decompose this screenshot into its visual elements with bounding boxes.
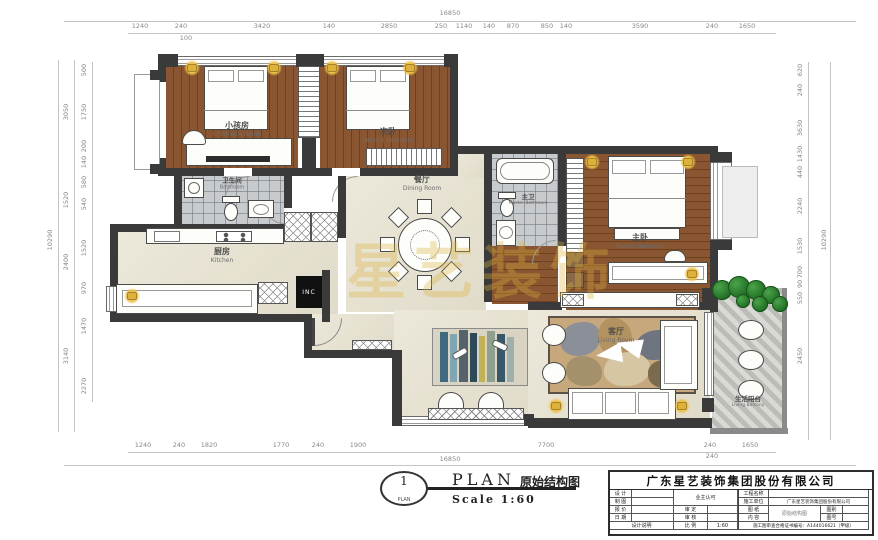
floor-lamp bbox=[548, 398, 564, 414]
room-name-cn: 客厅 bbox=[598, 327, 635, 337]
value-builder: 广东星艺装饰集团股份有限公司 bbox=[769, 498, 869, 506]
kitchen-sink bbox=[154, 231, 180, 242]
entry-cabinet bbox=[352, 340, 392, 350]
dimension-label: 2270 bbox=[80, 378, 88, 395]
field-design bbox=[632, 490, 674, 498]
dimension-line bbox=[74, 60, 75, 432]
dimension-label: 1770 bbox=[273, 441, 290, 449]
plan-symbol: 1 PLAN bbox=[380, 471, 428, 506]
rug-stripe bbox=[507, 337, 514, 382]
dimension-label: 3140 bbox=[62, 348, 70, 365]
floor-lamp bbox=[674, 398, 690, 414]
balcony-door bbox=[704, 312, 714, 396]
dimension-label: 140 bbox=[80, 156, 88, 168]
toilet-tank bbox=[222, 196, 240, 203]
plan-scale: Scale 1:60 bbox=[452, 493, 536, 506]
field-quote bbox=[632, 506, 674, 514]
dimension-label: 140 bbox=[560, 22, 572, 30]
pantry-cabinet bbox=[284, 212, 311, 242]
field-project bbox=[769, 490, 869, 498]
blanket-line bbox=[346, 110, 410, 111]
light-fixture bbox=[405, 64, 415, 72]
toilet bbox=[224, 203, 238, 221]
dimension-label: 10290 bbox=[820, 230, 828, 251]
wall bbox=[450, 56, 458, 176]
room-name-en: Second Bedroom bbox=[362, 137, 413, 145]
dimension-label: 550 bbox=[796, 292, 804, 304]
room-label-dining: 餐厅 Dining Room bbox=[403, 175, 441, 193]
field-date bbox=[632, 514, 674, 522]
stove bbox=[216, 231, 252, 242]
wall bbox=[392, 414, 402, 426]
dimension-label: 3050 bbox=[62, 104, 70, 121]
dimension-label: 1520 bbox=[62, 192, 70, 209]
room-name-cn: 卫生间 bbox=[220, 177, 245, 185]
dimension-label: 240 bbox=[173, 441, 185, 449]
room-label-second: 次卧 Second Bedroom bbox=[362, 127, 413, 145]
room-label-living: 客厅 Living Room bbox=[598, 327, 635, 345]
field-figtype bbox=[843, 506, 869, 514]
dimension-line bbox=[128, 452, 776, 453]
dimension-label: 500 bbox=[80, 64, 88, 76]
dimension-label: 240 bbox=[704, 441, 716, 449]
field-figno bbox=[843, 514, 869, 522]
wall bbox=[322, 270, 330, 322]
ceiling-light bbox=[324, 60, 340, 76]
dimension-label: 1750 bbox=[80, 104, 88, 121]
dimension-label: 1430 bbox=[796, 146, 804, 163]
dimension-label: 620 bbox=[796, 64, 804, 76]
dimension-label: 240 bbox=[312, 441, 324, 449]
dimension-line bbox=[58, 60, 59, 432]
dimension-label: 90 bbox=[796, 280, 804, 288]
room-label-children: 小孩房 Children's Room bbox=[213, 121, 262, 139]
dimension-line bbox=[92, 62, 93, 402]
room-label-kitchen: 厨房 Kitchen bbox=[211, 247, 234, 265]
dimension-label: 580 bbox=[80, 176, 88, 188]
dining-chair bbox=[417, 199, 432, 214]
field-check bbox=[708, 514, 738, 522]
value-cert: 施工图审查合格证书编号：A144016621（甲级） bbox=[739, 522, 869, 530]
dimension-label: 540 bbox=[80, 198, 88, 210]
company-name: 广东星艺装饰集团股份有限公司 bbox=[610, 472, 872, 490]
label-owner-approval: 业主认可 bbox=[674, 490, 738, 506]
room-label-master: 主卧 Master Bedroom bbox=[615, 233, 665, 251]
dimension-label: 2850 bbox=[381, 22, 398, 30]
round-chair bbox=[542, 324, 566, 346]
pillow bbox=[350, 70, 376, 82]
round-chair bbox=[542, 362, 566, 384]
washing-machine-drum bbox=[188, 182, 200, 194]
wall bbox=[150, 70, 166, 80]
ceiling-light bbox=[124, 288, 140, 304]
dimension-label: 3420 bbox=[254, 22, 271, 30]
refrigerator: INC bbox=[296, 276, 322, 308]
tv-console-cabinet bbox=[676, 294, 698, 306]
counter-bench-top bbox=[122, 290, 252, 307]
plant bbox=[752, 296, 768, 312]
console-table bbox=[428, 408, 524, 420]
wall bbox=[392, 350, 402, 424]
field-draft bbox=[632, 498, 674, 506]
dimension-label: 2400 bbox=[62, 254, 70, 271]
light-fixture bbox=[127, 292, 137, 300]
dimension-label: 1650 bbox=[739, 22, 756, 30]
room-name-en: Kitchen bbox=[211, 257, 234, 265]
room-label-balcony: 生活阳台 Living Balcony bbox=[732, 395, 765, 409]
blanket-line bbox=[608, 198, 686, 199]
label-ratio: 比 例 bbox=[674, 522, 708, 530]
dimension-label: 1650 bbox=[742, 441, 759, 449]
tv bbox=[206, 156, 270, 162]
watermark: 星艺装饰 bbox=[346, 224, 618, 311]
room-name-en: Master Bedroom bbox=[615, 243, 665, 251]
light-fixture bbox=[551, 402, 561, 410]
plan-number: 1 bbox=[382, 474, 426, 488]
ceiling-light bbox=[584, 154, 600, 170]
stool bbox=[664, 250, 686, 262]
sink-basin bbox=[253, 204, 269, 215]
dimension-label: 1520 bbox=[80, 240, 88, 257]
dimension-label: 700 bbox=[796, 266, 804, 278]
room-label-masterbath: 主卫 Master Bathroom bbox=[509, 193, 548, 207]
dimension-label: 970 bbox=[80, 282, 88, 294]
dimension-label: 2240 bbox=[796, 198, 804, 215]
dimension-label: 140 bbox=[483, 22, 495, 30]
pillow bbox=[650, 160, 684, 174]
room-name-cn: 餐厅 bbox=[403, 175, 441, 185]
dimension-label: 10290 bbox=[46, 230, 54, 251]
rug-stripe bbox=[440, 332, 448, 382]
dimension-line bbox=[128, 33, 776, 34]
label-check: 审 核 bbox=[674, 514, 708, 522]
rug-stripe bbox=[470, 333, 477, 382]
dimension-line bbox=[808, 62, 809, 440]
dimension-label: 100 bbox=[180, 34, 192, 42]
wall bbox=[174, 168, 182, 232]
wall bbox=[284, 168, 292, 208]
room-name-cn: 小孩房 bbox=[213, 121, 262, 131]
dimension-label: 1470 bbox=[80, 318, 88, 335]
plan-symbol-sub: PLAN bbox=[382, 497, 426, 503]
sofa-cushion bbox=[638, 392, 669, 414]
bathtub-basin bbox=[500, 162, 550, 180]
dimension-label: 3590 bbox=[632, 22, 649, 30]
ceiling-light bbox=[684, 266, 700, 282]
light-fixture bbox=[269, 64, 279, 72]
dimension-label: 2450 bbox=[796, 348, 804, 365]
rug-stripe bbox=[479, 336, 485, 382]
dimension-label: 250 bbox=[435, 22, 447, 30]
dimension-label: 1140 bbox=[456, 22, 473, 30]
title-block-left: 设 计 业主认可 制 图 报 价 审 定 日 期 审 核 设计说明 比 例 1:… bbox=[610, 490, 738, 530]
label-project: 工程名称 bbox=[739, 490, 769, 498]
room-name-cn: 次卧 bbox=[362, 127, 413, 137]
pillow bbox=[612, 160, 646, 174]
plan-title-cn: 原始结构图 bbox=[520, 473, 580, 490]
light-fixture bbox=[683, 158, 693, 166]
dimension-line bbox=[830, 62, 831, 440]
balcony-stool bbox=[738, 320, 764, 340]
light-fixture bbox=[327, 64, 337, 72]
dimension-label: 200 bbox=[80, 140, 88, 152]
label-design: 设 计 bbox=[610, 490, 632, 498]
plant bbox=[736, 294, 750, 308]
wall bbox=[450, 146, 718, 154]
balcony-edge bbox=[710, 428, 788, 434]
plant bbox=[772, 296, 788, 312]
dimension-label: 1530 bbox=[796, 238, 804, 255]
dimension-label: 16850 bbox=[440, 9, 461, 17]
label-figtype: 图别 bbox=[821, 506, 843, 514]
dimension-label: 240 bbox=[706, 452, 718, 460]
bay-window bbox=[134, 74, 160, 170]
dimension-label: 240 bbox=[175, 22, 187, 30]
label-draft: 制 图 bbox=[610, 498, 632, 506]
dimension-label: 7700 bbox=[538, 441, 555, 449]
dimension-label: 16850 bbox=[440, 455, 461, 463]
title-block: 广东星艺装饰集团股份有限公司 设 计 业主认可 制 图 报 价 审 定 日 期 … bbox=[608, 470, 874, 536]
dimension-label: 1240 bbox=[135, 441, 152, 449]
room-name-en: Living Balcony bbox=[732, 403, 765, 409]
wall bbox=[710, 152, 732, 162]
wall bbox=[710, 240, 732, 250]
closet bbox=[298, 66, 320, 138]
blanket-line bbox=[204, 110, 268, 111]
label-date: 日 期 bbox=[610, 514, 632, 522]
wall bbox=[302, 138, 316, 176]
balcony-stool bbox=[738, 350, 764, 370]
room-name-en: Children's Room bbox=[213, 131, 262, 139]
dimension-label: 240 bbox=[796, 84, 804, 96]
door-opening bbox=[332, 168, 360, 176]
pillow bbox=[208, 70, 234, 82]
ceiling-light bbox=[184, 60, 200, 76]
ceiling-light bbox=[680, 154, 696, 170]
floor-plan-sheet: 1685012402403420140285025011401408708501… bbox=[0, 0, 878, 540]
armchair-cushion bbox=[664, 326, 692, 384]
dimension-label: 440 bbox=[796, 166, 804, 178]
room-name-en: Master Bathroom bbox=[509, 201, 548, 207]
ceiling-light bbox=[402, 60, 418, 76]
label-design-note: 设计说明 bbox=[610, 522, 674, 530]
room-name-en: Living Room bbox=[598, 337, 635, 345]
field-approve bbox=[708, 506, 738, 514]
value-sheet: 原始结构图 bbox=[769, 506, 821, 522]
pantry-cabinet bbox=[311, 212, 338, 242]
sofa-cushion bbox=[605, 392, 636, 414]
cabinet bbox=[258, 282, 288, 304]
rug-stripe bbox=[487, 331, 495, 382]
light-fixture bbox=[187, 64, 197, 72]
room-name-en: Bathroom bbox=[220, 185, 245, 192]
label-sheet: 图 纸 bbox=[739, 506, 769, 514]
light-fixture bbox=[587, 158, 597, 166]
door-opening bbox=[224, 168, 252, 176]
wall bbox=[702, 398, 714, 412]
light-fixture bbox=[677, 402, 687, 410]
sofa-cushion bbox=[572, 392, 603, 414]
label-builder: 施工单位 bbox=[739, 498, 769, 506]
dimension-line bbox=[64, 465, 856, 466]
label-content: 内 容 bbox=[739, 514, 769, 522]
label-approve: 审 定 bbox=[674, 506, 708, 514]
dimension-label: 1900 bbox=[350, 441, 367, 449]
dimension-label: 870 bbox=[507, 22, 519, 30]
light-fixture bbox=[687, 270, 697, 278]
label-figno: 图号 bbox=[821, 514, 843, 522]
pillow bbox=[238, 70, 264, 82]
wall bbox=[338, 176, 346, 238]
wall bbox=[304, 350, 400, 358]
dresser bbox=[366, 148, 442, 166]
ceiling-light bbox=[266, 60, 282, 76]
label-quote: 报 价 bbox=[610, 506, 632, 514]
dimension-label: 850 bbox=[541, 22, 553, 30]
dimension-label: 3630 bbox=[796, 120, 804, 137]
dimension-label: 1820 bbox=[201, 441, 218, 449]
dimension-label: 240 bbox=[706, 22, 718, 30]
title-block-right: 工程名称 施工单位 广东星艺装饰集团股份有限公司 图 纸 原始结构图 图别 内 … bbox=[738, 490, 869, 530]
room-name-en: Dining Room bbox=[403, 185, 441, 193]
dimension-label: 1240 bbox=[132, 22, 149, 30]
dimension-label: 140 bbox=[323, 22, 335, 30]
refrigerator-label: INC bbox=[302, 289, 315, 296]
ac-platform bbox=[722, 166, 758, 238]
rug-pattern bbox=[566, 356, 602, 386]
wall bbox=[110, 314, 310, 322]
room-label-bathroom: 卫生间 Bathroom bbox=[220, 177, 245, 192]
value-ratio: 1:60 bbox=[708, 522, 738, 530]
plan-title-en: PLAN bbox=[452, 470, 515, 489]
room-name-cn: 主卧 bbox=[615, 233, 665, 243]
room-name-cn: 厨房 bbox=[211, 247, 234, 257]
